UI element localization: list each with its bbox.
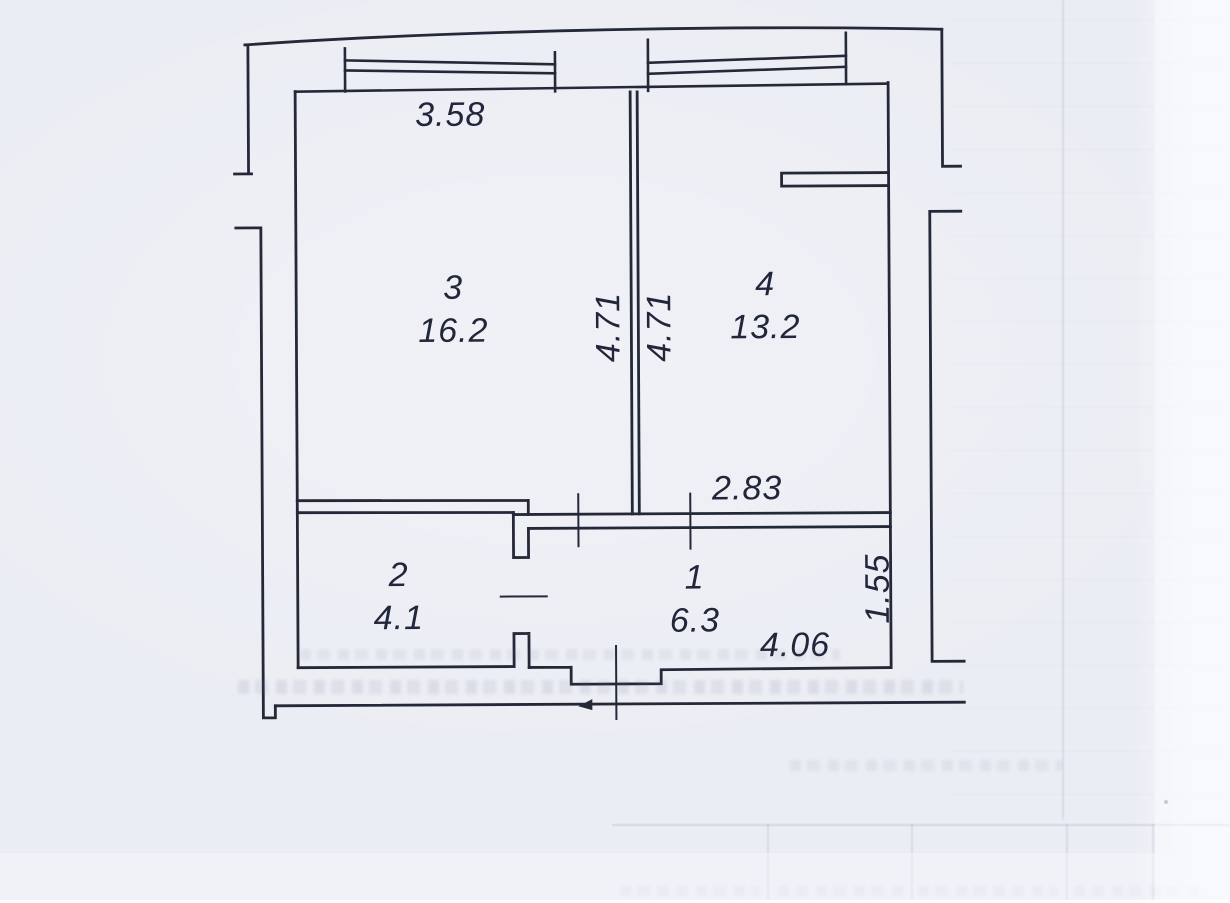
dim-partition-right-height: 4.71 <box>642 292 676 362</box>
dim-partition-left-height: 4.71 <box>591 292 625 362</box>
dim-hall-bottom-width: 4.06 <box>760 628 830 662</box>
dim-hall-right-height: 1.55 <box>861 553 895 623</box>
room-2-number: 2 <box>373 558 423 596</box>
room-3-area: 16.2 <box>418 309 488 348</box>
room-3-number: 3 <box>418 271 488 309</box>
room-4-area: 13.2 <box>730 305 800 344</box>
room-4-number: 4 <box>730 267 800 305</box>
scan-speck <box>1164 800 1168 804</box>
room-1-area: 6.3 <box>670 598 720 637</box>
room-4-label: 4 13.2 <box>730 267 801 344</box>
room-2-area: 4.1 <box>374 596 424 635</box>
room-2-label: 2 4.1 <box>373 558 424 635</box>
floor-plan-drawing <box>0 0 1230 903</box>
exterior-walls <box>234 27 965 718</box>
room-1-label: 1 6.3 <box>669 560 720 637</box>
scanned-floor-plan-page: 3.58 4.71 4.71 2.83 4.06 1.55 3 16.2 4 1… <box>0 0 1230 900</box>
room-1-number: 1 <box>669 560 719 598</box>
floor-plan: 3.58 4.71 4.71 2.83 4.06 1.55 3 16.2 4 1… <box>0 0 1230 903</box>
dim-hall-top-width: 2.83 <box>712 471 782 505</box>
room-3-label: 3 16.2 <box>418 271 489 348</box>
dim-top-width: 3.58 <box>415 98 485 132</box>
window-band <box>295 33 888 93</box>
